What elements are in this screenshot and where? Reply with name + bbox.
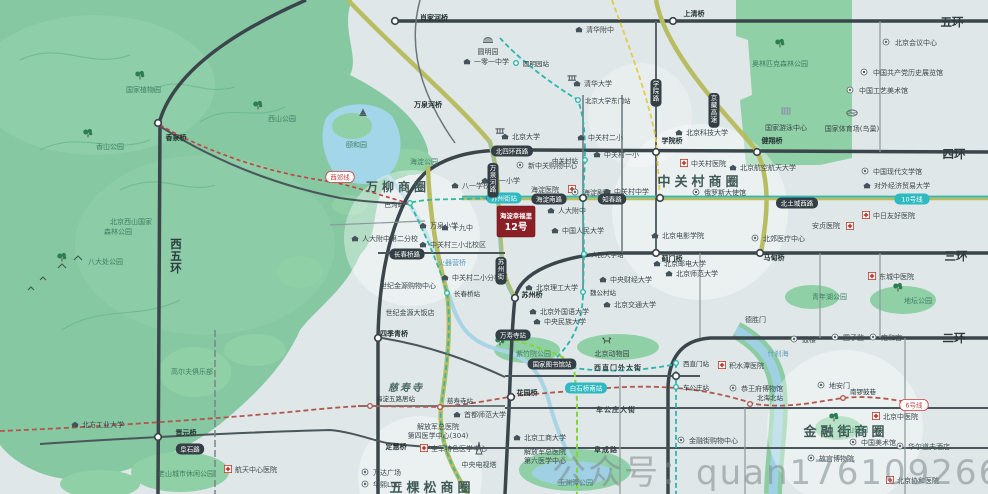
school-label: 人大附中第二分校: [362, 234, 418, 243]
hosp-label: 海淀医院: [531, 185, 559, 194]
business-district-label: 万柳商圈: [365, 179, 430, 194]
park-label: 老山城市休闲公园: [158, 469, 214, 478]
hosp-label: 北京中医院: [883, 412, 918, 421]
subway-station-dot: [576, 98, 581, 103]
school-label: 中关村二小: [588, 133, 623, 142]
bridge-label: 香泉桥: [165, 133, 188, 142]
bridge-label: 定慧桥: [386, 442, 408, 451]
subway-station-label: 人民大学站: [591, 250, 624, 259]
project-logo: 海淀幸福里 12号: [497, 206, 535, 237]
subway-station-label: 南锣鼓巷: [850, 387, 877, 396]
business-district-label: 中关村商圈: [657, 174, 742, 190]
hospital-cross-icon: [872, 412, 879, 419]
park-label: 香山公园: [96, 142, 124, 151]
hospital-cross-icon: [718, 361, 725, 368]
subway-station-label: 北京大学东门站: [585, 96, 631, 105]
dot-icon: [517, 162, 523, 168]
pill-label: 北四环西路: [496, 146, 529, 155]
park-blob: [277, 256, 323, 288]
dot-icon: [832, 334, 838, 340]
pill-label: 长春桥路: [394, 249, 421, 258]
road-junction: [512, 295, 519, 302]
pill-label: 北土城西路: [781, 198, 814, 207]
subway-station-dot: [368, 404, 373, 409]
subway-station-label: 西直门站: [683, 359, 710, 368]
dot-icon: [730, 385, 736, 391]
bridge-label: 四季青桥: [380, 329, 409, 338]
dot-icon: [791, 336, 797, 342]
subway-station-dot: [841, 396, 846, 401]
bridge-label: 上清桥: [684, 9, 706, 18]
school-label: 一零一中学: [474, 57, 509, 66]
pill-label: 阜石路: [180, 444, 200, 453]
place-label: 恭王府博物馆: [741, 384, 783, 393]
school-label: 十九中: [452, 223, 473, 232]
dot-icon: [862, 168, 868, 174]
bridge-label: 肖家河桥: [420, 13, 449, 22]
pill-label: 海淀南路: [536, 194, 563, 203]
subway-station-dot: [514, 61, 519, 66]
hosp-label: 安贞医院: [812, 221, 840, 230]
place-label: 北京会议中心: [895, 38, 937, 47]
road-junction: [754, 149, 761, 156]
school-label: 中关村三小北校区: [430, 240, 486, 249]
road-pill-label: 学院路: [653, 79, 660, 102]
subway-station-dot: [438, 405, 443, 410]
place-label: 北京动物园: [595, 349, 630, 358]
dot-icon: [883, 39, 889, 45]
subway-station-label: 巴沟站: [385, 200, 405, 209]
ring-road-label: 三环: [945, 249, 968, 263]
ring-road-label: 二环: [943, 331, 966, 345]
hospital-cross-icon: [846, 222, 853, 229]
park-label: 国家植物园: [126, 85, 161, 94]
place-label: 鼓楼: [802, 335, 816, 344]
dot-icon: [752, 235, 758, 241]
subway-station-dot: [674, 361, 679, 366]
place-label: 中国共产党历史展览馆: [873, 68, 943, 77]
dot-icon: [897, 443, 903, 449]
subway-station-label: 魏公村站: [590, 288, 617, 297]
subway-station-dot: [408, 201, 413, 206]
pill-label: 西郊线: [330, 172, 350, 181]
pill-label: 国家图书馆站: [533, 359, 573, 368]
place-label: 中央电视塔: [462, 460, 497, 469]
logo-line2: 12号: [505, 222, 528, 233]
school-label: 清华大学: [584, 79, 612, 88]
ring-road-label: 西五环: [170, 237, 182, 275]
place-label: 世纪金源购物中心: [380, 281, 436, 290]
bridge-label: 花园桥: [517, 388, 539, 397]
park-label: 森林公园: [104, 227, 132, 236]
dot-icon: [693, 189, 699, 195]
school-label: 中关村一小: [604, 150, 639, 159]
school-label: 北京工商大学: [524, 433, 566, 442]
school-label: 清华附中: [586, 25, 614, 34]
place-label: 华熙LIVE: [373, 480, 402, 489]
pill-label: 万寿寺站: [500, 330, 527, 339]
place-label: 第四医学中心(304): [408, 431, 469, 440]
subway-station-label: 慈寿寺站: [447, 396, 474, 405]
place-label: 华尔道夫酒店: [908, 442, 950, 451]
road-junction: [392, 18, 399, 25]
subway-station-label: 海淀五路居站: [376, 394, 416, 403]
business-district-label: 五棵松商圈: [389, 480, 474, 494]
park-label: 高尔夫俱乐部: [171, 367, 213, 376]
road-pill-label: 万泉河路: [490, 164, 497, 194]
hosp-label: 中日友好医院: [873, 211, 915, 220]
dot-icon: [818, 382, 824, 388]
bridge-label: 学院桥: [662, 136, 684, 145]
school-label: 北京交通大学: [614, 300, 656, 309]
dot-icon: [861, 69, 867, 75]
hosp-label: 中关村医院: [691, 159, 726, 168]
road-junction: [670, 18, 677, 25]
school-label: 北京理工大学: [536, 283, 578, 292]
school-label: 北京大学: [512, 132, 540, 141]
park-label: 颐和园: [346, 140, 367, 149]
bridge-label: 健翔桥: [762, 136, 784, 145]
road-junction: [673, 373, 680, 380]
road-pill-label: 苏州街: [498, 257, 505, 280]
watermark-text: 公众号：quan17610926618: [552, 453, 988, 493]
bridge-label: 万泉河桥: [413, 100, 443, 109]
school-label: 中央民族大学: [544, 317, 586, 326]
dot-icon: [362, 481, 368, 487]
place-label: 国家游泳中心: [765, 123, 807, 132]
road-junction: [653, 149, 660, 156]
place-label: 地安门: [829, 381, 850, 390]
dot-icon: [678, 437, 684, 443]
school-label: 北京科技大学: [686, 128, 728, 137]
pill-label: 10号线: [901, 194, 923, 203]
school-label: 北京电影学院: [662, 231, 704, 240]
dot-icon: [847, 87, 853, 93]
park-label: 地坛公园: [904, 296, 932, 305]
subway-station-label: 圆明园站: [523, 59, 550, 68]
dot-icon: [850, 439, 856, 445]
school-label: 中国人民大学: [562, 226, 604, 235]
dot-icon: [870, 334, 876, 340]
subway-station-dot: [582, 252, 587, 257]
cube-icon: [782, 108, 790, 114]
hospital-cross-icon: [224, 465, 231, 472]
hospital-cross-icon: [420, 444, 427, 451]
place-label: 德胜门: [745, 315, 766, 324]
hosp-label: 东城中医院: [879, 272, 914, 281]
park-label: 八大处公园: [88, 257, 123, 266]
dot-icon: [572, 189, 578, 195]
place-label: 俄罗斯大使馆: [704, 188, 746, 197]
park-label: 奥林匹克森林公园: [752, 59, 808, 68]
road-junction: [155, 434, 162, 441]
hospital-cross-icon: [862, 211, 869, 218]
place-label: 北郊医疗中心: [763, 234, 805, 243]
park-blob: [224, 334, 286, 366]
summer-palace-island: [332, 113, 372, 139]
subway-station-label: 车公庄站: [683, 383, 710, 392]
place-label: 万达广场: [373, 468, 401, 477]
place-label: 中国美术馆: [861, 438, 896, 447]
hospital-cross-icon: [868, 272, 875, 279]
road-name-label: 车公庄大街: [596, 405, 636, 414]
pill-label: 6号线: [905, 400, 923, 409]
subway-station-dot: [748, 402, 753, 407]
place-label: 国子监: [843, 333, 864, 342]
terrain-layer: [0, 0, 988, 494]
subway-station-label: 长春桥站: [454, 289, 481, 298]
park-label: 西山公园: [268, 114, 296, 123]
school-label: 北京外国语大学: [540, 307, 589, 316]
place-label: 中国工艺美术馆: [859, 86, 908, 95]
subway-station-dot: [583, 158, 588, 163]
place-label: 世纪金源大饭店: [386, 308, 435, 317]
park-label: 北京西山国家: [110, 217, 152, 226]
subway-station-dot: [581, 290, 586, 295]
place-label: 雍和宫: [881, 333, 902, 342]
road-junction: [657, 195, 664, 202]
hospital-cross-icon: [680, 159, 687, 166]
mountain-highlight: [75, 155, 335, 335]
olympic-forest-park: [736, 0, 852, 165]
park-label: 紫竹院公园: [516, 349, 551, 358]
place-label: 中国现代文学馆: [873, 167, 922, 176]
road-junction: [155, 120, 162, 127]
place-label: 金融街购物中心: [689, 436, 738, 445]
school-label: 对外经济贸易大学: [874, 181, 930, 190]
road-pill-label: 京藏高速: [711, 93, 718, 124]
school-label: 人大附中: [558, 206, 586, 215]
water-label: 火器营桥: [438, 258, 466, 267]
park-label: 海淀公园: [410, 157, 438, 166]
place-label: 解放军总医院: [417, 422, 459, 431]
subway-station-dot: [674, 385, 679, 390]
place-label: 国家体育场(鸟巢): [825, 124, 880, 133]
park-label: 景山公园: [840, 425, 868, 434]
school-label: 北方工业大学: [82, 420, 124, 429]
road-junction: [508, 394, 515, 401]
ring-road-label: 四环: [943, 147, 966, 161]
subway-station-label: 北海北站: [757, 393, 784, 402]
pill-label: 知春路: [602, 194, 622, 203]
logo-line1: 海淀幸福里: [500, 211, 533, 220]
hosp-label: 积水潭医院: [729, 361, 764, 370]
place-label: 新中关购物中心: [528, 161, 577, 170]
road-junction: [653, 250, 660, 257]
bridge-label: 晋元桥: [176, 428, 198, 437]
road-junction: [757, 250, 764, 257]
subway-station-dot: [445, 291, 450, 296]
school-label: 中央财经大学: [610, 275, 652, 284]
ring-road-label: 五环: [941, 15, 964, 29]
dot-icon: [362, 469, 368, 475]
hosp-label: 航天中心医院: [235, 465, 277, 474]
road-name-label: 西直门外大街: [594, 363, 642, 372]
school-label: 首都师范大学: [464, 410, 506, 419]
beijing-map: 圆明园站北京大学东门站中关村站人民大学站魏公村站长春桥站慈寿寺站海淀五路居站巴沟…: [0, 0, 988, 494]
bridge-label: 马甸桥: [764, 253, 786, 262]
school-label: 北京航空航天大学: [740, 163, 796, 172]
place-label: 圆明园: [478, 48, 499, 56]
map-screenshot: 圆明园站北京大学东门站中关村站人民大学站魏公村站长春桥站慈寿寺站海淀五路居站巴沟…: [0, 0, 988, 494]
school-label: 北京师范大学: [676, 269, 718, 278]
temple-label: 慈寿寺: [388, 382, 424, 394]
school-label: 北京邮电大学: [664, 259, 706, 268]
water-label: 什刹海: [768, 349, 789, 358]
pill-label: 白石桥南站: [570, 383, 603, 392]
park-label: 青年湖公园: [812, 292, 847, 301]
